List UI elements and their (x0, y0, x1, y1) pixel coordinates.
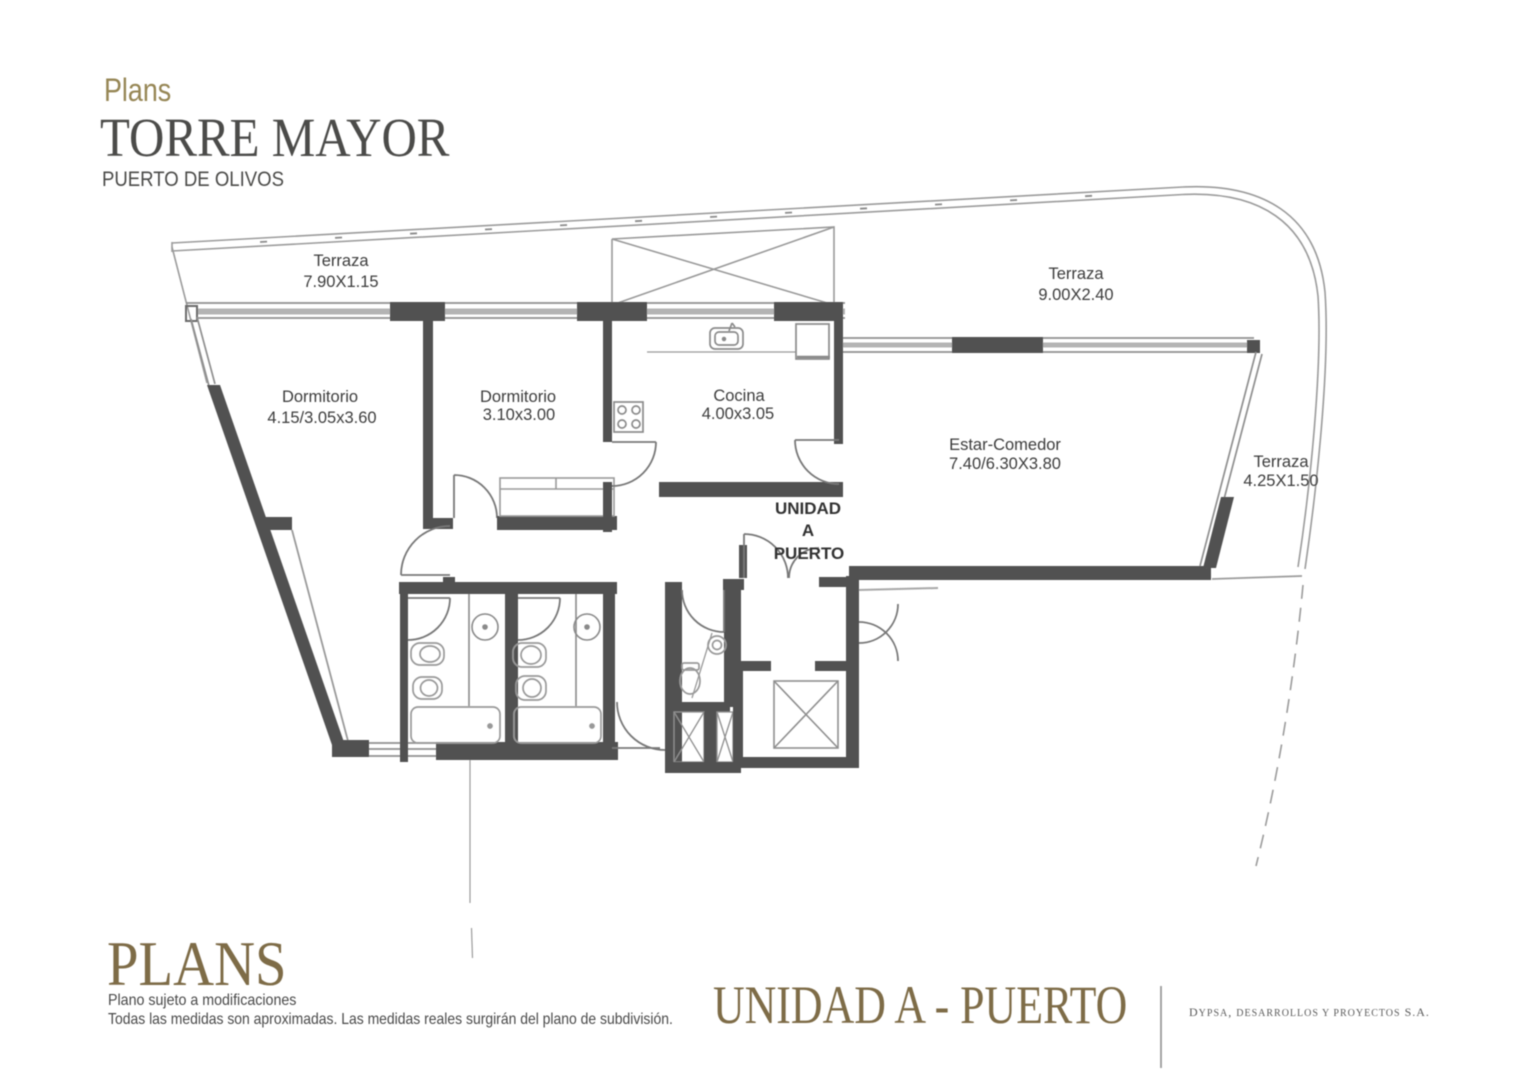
svg-text:Terraza: Terraza (1253, 453, 1309, 471)
svg-text:9.00X2.40: 9.00X2.40 (1038, 286, 1113, 304)
svg-text:Dormitorio: Dormitorio (480, 388, 556, 406)
svg-text:3.10x3.00: 3.10x3.00 (483, 406, 555, 424)
svg-text:Terraza: Terraza (1048, 265, 1104, 283)
svg-text:4.15/3.05x3.60: 4.15/3.05x3.60 (267, 409, 376, 427)
svg-text:Dormitorio: Dormitorio (282, 388, 358, 406)
svg-text:A: A (802, 521, 814, 540)
svg-text:7.90X1.15: 7.90X1.15 (303, 273, 378, 291)
svg-text:Terraza: Terraza (313, 252, 369, 270)
svg-text:PUERTO: PUERTO (774, 544, 845, 563)
svg-text:Plans: Plans (104, 73, 171, 109)
svg-text:Todas las medidas son aproxima: Todas las medidas son aproximadas. Las m… (108, 1011, 673, 1028)
svg-text:TORRE MAYOR: TORRE MAYOR (100, 108, 450, 168)
svg-text:DYPSA, DESARROLLOS Y PROYECTOS: DYPSA, DESARROLLOS Y PROYECTOS S.A. (1189, 1005, 1430, 1019)
svg-text:UNIDAD: UNIDAD (775, 499, 841, 518)
svg-text:7.40/6.30X3.80: 7.40/6.30X3.80 (949, 455, 1061, 473)
svg-text:Estar-Comedor: Estar-Comedor (949, 436, 1061, 454)
svg-text:Plano sujeto a modificaciones: Plano sujeto a modificaciones (108, 993, 296, 1010)
svg-text:PLANS: PLANS (107, 929, 287, 998)
svg-text:UNIDAD A - PUERTO: UNIDAD A - PUERTO (713, 975, 1127, 1035)
svg-text:4.00x3.05: 4.00x3.05 (702, 405, 774, 423)
svg-text:PUERTO DE OLIVOS: PUERTO DE OLIVOS (102, 168, 284, 191)
svg-text:4.25X1.50: 4.25X1.50 (1243, 472, 1318, 490)
svg-text:Cocina: Cocina (713, 387, 765, 405)
